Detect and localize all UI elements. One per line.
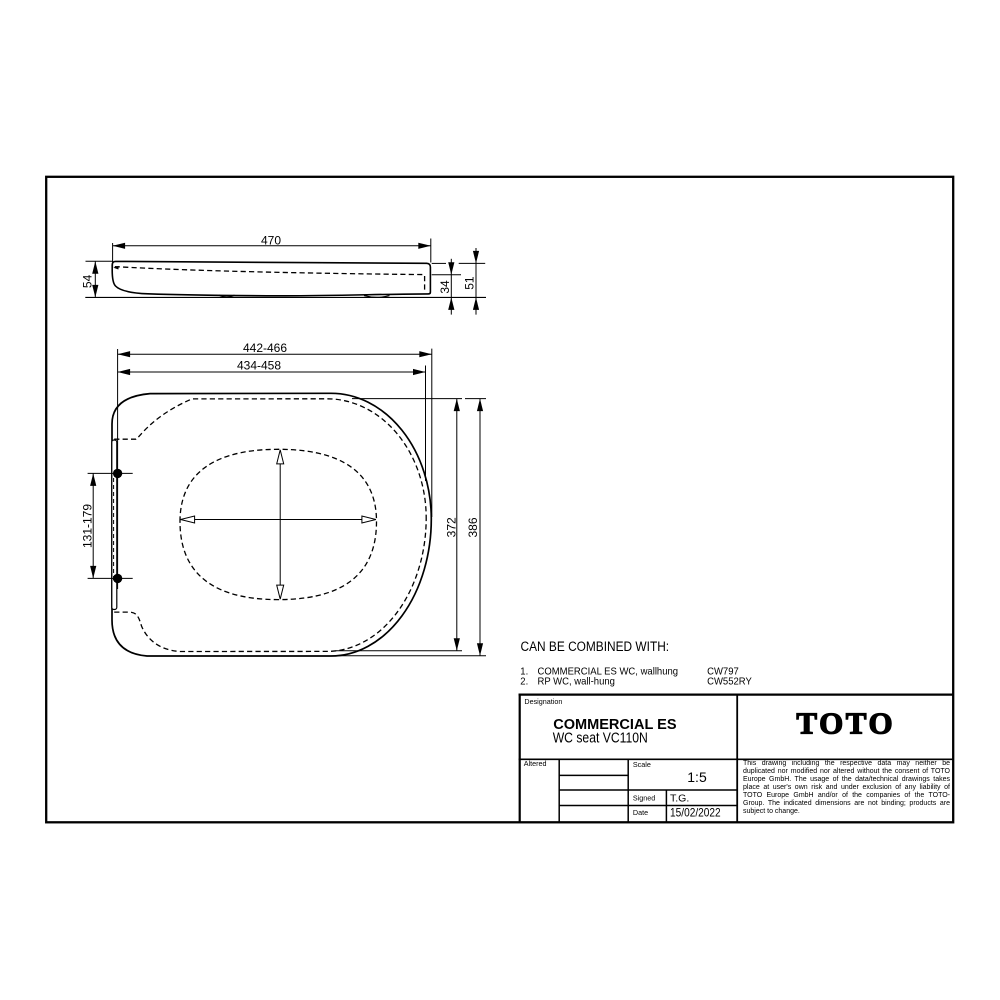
svg-text:Signed: Signed	[633, 794, 655, 803]
svg-text:Altered: Altered	[524, 759, 547, 768]
svg-text:470: 470	[261, 234, 281, 248]
svg-text:RP WC, wall-hung: RP WC, wall-hung	[538, 676, 615, 687]
svg-text:1:5: 1:5	[687, 769, 707, 785]
svg-text:2.: 2.	[520, 676, 528, 687]
svg-text:WC seat VC110N: WC seat VC110N	[553, 730, 648, 746]
svg-text:Designation: Designation	[524, 697, 562, 706]
svg-text:Date: Date	[633, 808, 648, 817]
svg-text:T.G.: T.G.	[670, 792, 689, 804]
svg-text:CAN BE COMBINED WITH:: CAN BE COMBINED WITH:	[521, 638, 670, 654]
svg-text:434-458: 434-458	[237, 359, 281, 373]
svg-text:442-466: 442-466	[243, 341, 287, 355]
svg-text:54: 54	[81, 274, 95, 288]
svg-text:15/02/2022: 15/02/2022	[670, 807, 721, 820]
svg-text:CW552RY: CW552RY	[707, 676, 752, 687]
svg-text:34: 34	[438, 280, 452, 294]
svg-text:131-179: 131-179	[81, 504, 95, 548]
svg-text:Scale: Scale	[633, 760, 651, 769]
svg-text:372: 372	[444, 517, 458, 537]
svg-text:386: 386	[466, 517, 480, 537]
svg-text:TOTO: TOTO	[796, 706, 895, 741]
svg-text:51: 51	[462, 276, 476, 290]
